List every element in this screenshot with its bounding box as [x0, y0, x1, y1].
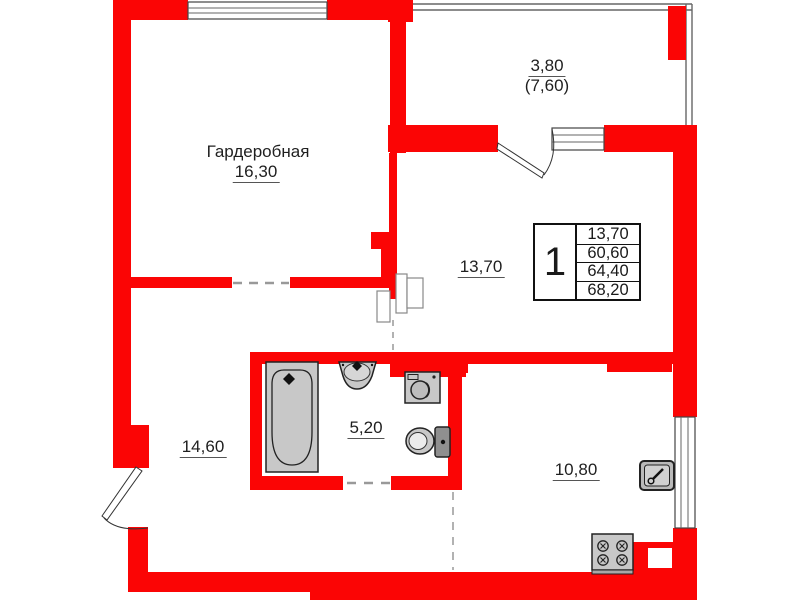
rooms-count: 1 — [535, 225, 577, 299]
room-label-bathroom-area: 5,20 — [347, 418, 384, 438]
info-table-row: 64,40 — [577, 262, 639, 281]
room-label-hall-area: 14,60 — [180, 437, 227, 457]
bathtub-icon — [266, 362, 318, 472]
room-label-kitchen-area: 10,80 — [553, 460, 600, 480]
room-label-living-area: 13,70 — [458, 257, 505, 277]
wardrobe-window-icon — [188, 2, 327, 19]
floor-plan: Гардеробная 16,30 3,80 (7,60) 13,70 5,20… — [0, 0, 800, 600]
balcony-door-icon — [497, 129, 554, 178]
entrance-door-icon — [102, 467, 148, 529]
floor-plan-drawing — [0, 0, 800, 600]
apartment-info-table: 1 13,70 60,60 64,40 68,20 — [533, 223, 641, 301]
info-table-row: 68,20 — [577, 281, 639, 300]
room-label-balcony-area: 3,80 — [528, 56, 565, 76]
bathroom-sink-icon — [339, 361, 376, 389]
info-table-row: 60,60 — [577, 244, 639, 263]
room-label-wardrobe-name: Гардеробная — [207, 142, 310, 162]
stove-icon — [592, 534, 633, 574]
toilet-icon — [406, 427, 450, 457]
vent-shaft — [648, 548, 672, 568]
info-table-row: 13,70 — [577, 225, 639, 244]
room-label-wardrobe-area: 16,30 — [233, 162, 280, 182]
washing-machine-icon — [405, 372, 440, 403]
room-label-balcony-area-total: (7,60) — [525, 76, 569, 96]
kitchen-window-icon — [675, 417, 695, 528]
balcony-window-icon — [552, 128, 604, 150]
kitchen-sink-icon — [640, 461, 674, 490]
